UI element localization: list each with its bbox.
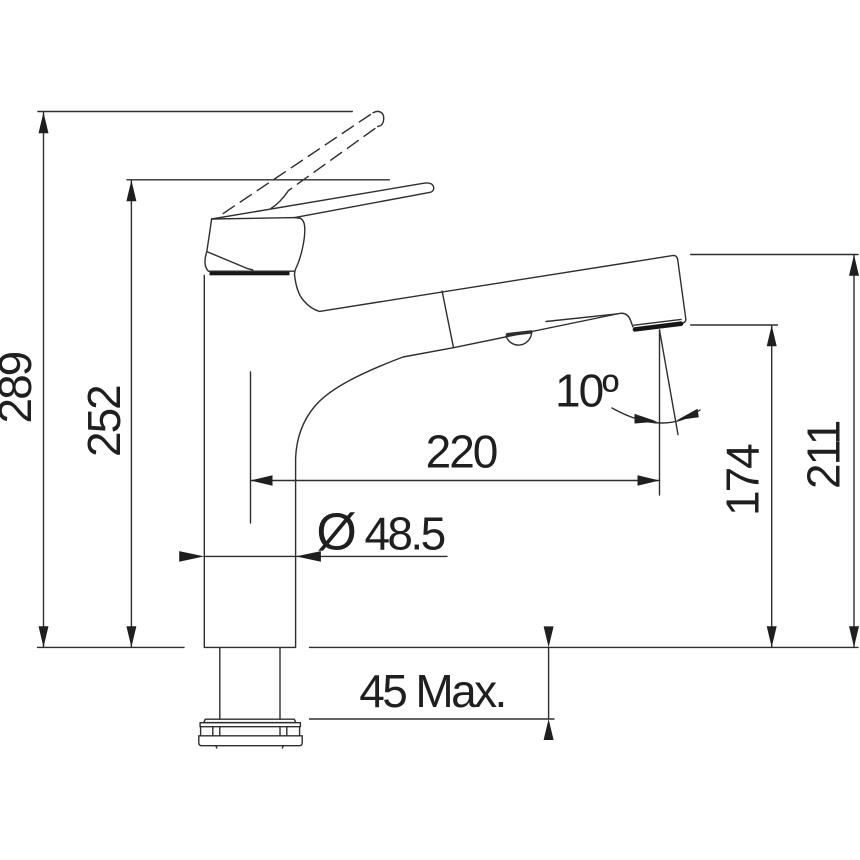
svg-text:252: 252 <box>78 386 130 457</box>
svg-text:10º: 10º <box>555 365 619 417</box>
svg-text:211: 211 <box>798 421 850 489</box>
svg-text:45 Max.: 45 Max. <box>359 665 504 717</box>
svg-text:Ø 48.5: Ø 48.5 <box>316 504 444 562</box>
svg-text:174: 174 <box>717 444 769 516</box>
svg-text:289: 289 <box>0 352 41 423</box>
svg-text:220: 220 <box>426 426 497 478</box>
